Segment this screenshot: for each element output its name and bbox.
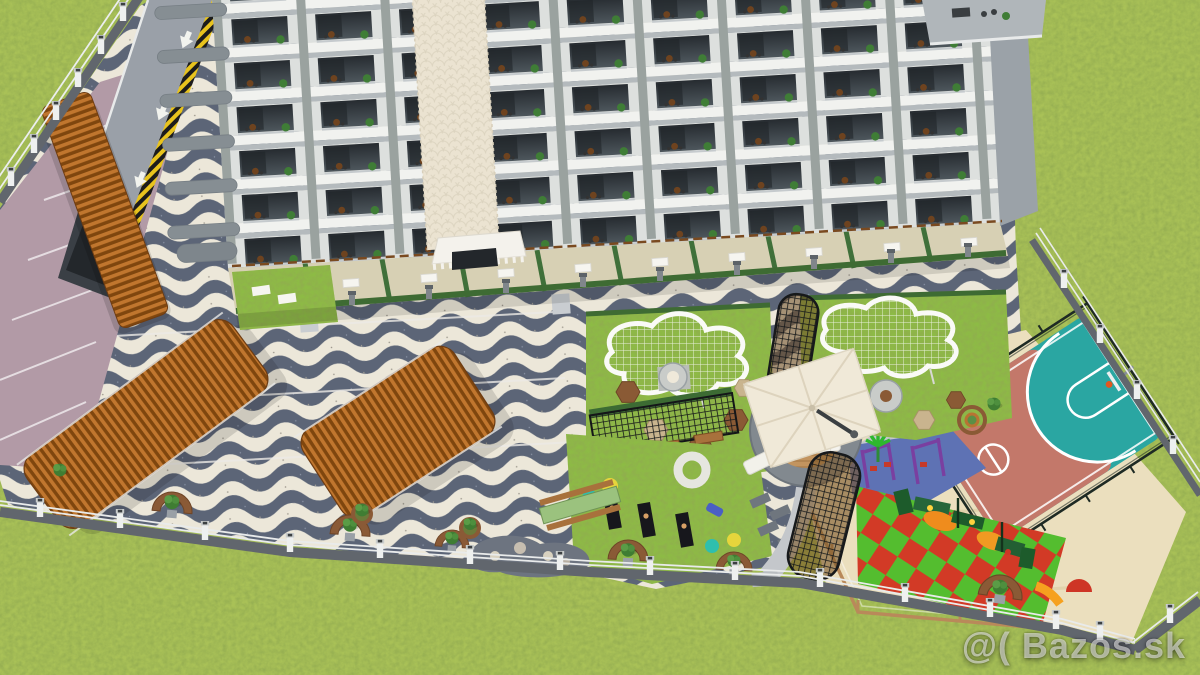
rooftop-terrace <box>922 0 1046 44</box>
render-image: @( Bazos.sk <box>0 0 1200 675</box>
watermark: @( Bazos.sk <box>962 625 1186 667</box>
